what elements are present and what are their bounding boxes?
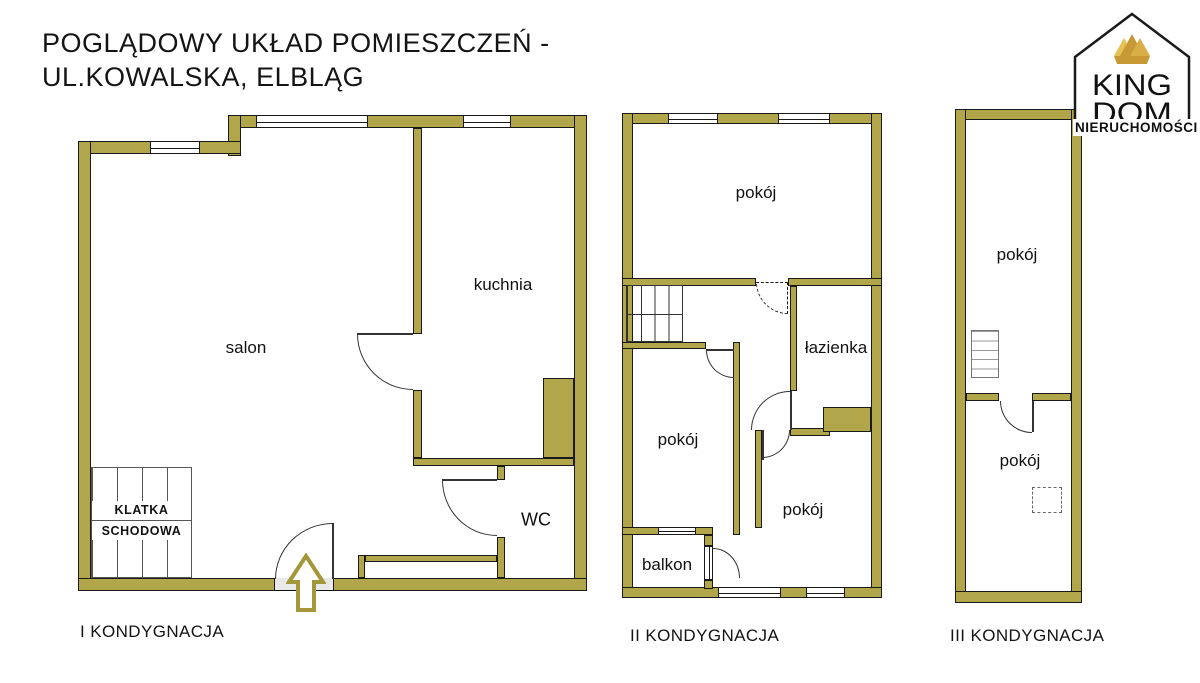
wall-room-left-right: [733, 342, 740, 535]
door-arc: [1000, 401, 1032, 433]
room-label-balcony: balkon: [642, 555, 692, 575]
balcony-door: [704, 546, 713, 580]
door-arc-bathroom: [751, 391, 790, 430]
floor-3-caption: III KONDYGNACJA: [950, 626, 1104, 646]
wall-room-right-left: [755, 430, 762, 528]
door-arc-room-top: [756, 282, 788, 314]
page-title-line1: POGLĄDOWY UKŁAD POMIESZCZEŃ -: [42, 26, 550, 60]
door-arc-wc: [442, 480, 497, 536]
wall-wc: [497, 537, 505, 578]
page-title-line2: UL.KOWALSKA, ELBLĄG: [42, 60, 550, 94]
room-label-room-upper: pokój: [997, 245, 1038, 265]
wall-thick-block: [543, 378, 574, 458]
staircase-label-line2: SCHODOWA: [92, 521, 191, 540]
window: [806, 587, 845, 598]
floor-plan-3: pokój pokój: [955, 107, 1082, 607]
wall-salon-kitchen-divider: [413, 390, 422, 458]
staircase: [626, 285, 683, 342]
floor-plan-1: KLATKA SCHODOWA salon kuchnia WC: [78, 113, 587, 613]
wall: [333, 578, 587, 591]
door-leaf: [1032, 401, 1034, 432]
wall: [574, 115, 587, 591]
entrance-arrow-shape: [289, 556, 323, 610]
wall: [78, 141, 91, 591]
wall: [622, 113, 882, 124]
door-arc-room-left: [706, 350, 734, 378]
wall: [955, 109, 1082, 120]
wall: [871, 113, 882, 598]
room-label-room-left: pokój: [658, 430, 699, 450]
floor-1-caption: I KONDYGNACJA: [80, 622, 224, 642]
room-label-room-right: pokój: [783, 500, 824, 520]
staircase-label-line1: KLATKA: [92, 501, 191, 521]
door-arc-balcony: [713, 548, 740, 578]
floor-2-caption: II KONDYGNACJA: [630, 626, 779, 646]
wall-wc: [497, 466, 505, 480]
room-label-wc: WC: [521, 510, 551, 531]
wall-kitchen-bottom: [413, 458, 574, 466]
wall: [78, 578, 275, 591]
window: [778, 113, 830, 124]
floor-plan-2: pokój łazienka pokój pokój balkon: [622, 108, 882, 608]
door-arc-room-right: [762, 430, 790, 458]
wall: [1071, 109, 1082, 603]
page-title: POGLĄDOWY UKŁAD POMIESZCZEŃ - UL.KOWALSK…: [42, 26, 550, 94]
wall-divider: [1032, 393, 1071, 401]
wall: [955, 591, 1082, 603]
window: [463, 115, 511, 128]
room-label-room-top: pokój: [736, 183, 777, 203]
floor-plan-page: POGLĄDOWY UKŁAD POMIESZCZEŃ - UL.KOWALSK…: [0, 0, 1200, 683]
wall: [622, 113, 633, 598]
wall-hall: [358, 555, 365, 578]
wall-divider: [966, 393, 999, 401]
skylight-marker: [1032, 487, 1062, 513]
window: [150, 141, 200, 154]
room-label-bathroom: łazienka: [805, 338, 867, 358]
window: [668, 113, 718, 124]
entrance-arrow-icon: [286, 553, 326, 613]
window: [718, 587, 781, 598]
logo-subtitle: NIERUCHOMOŚCI: [1073, 119, 1200, 136]
wall-balcony: [704, 535, 713, 546]
room-label-salon: salon: [226, 338, 267, 358]
door-arc-kitchen: [357, 334, 413, 390]
wall-salon-kitchen-divider: [413, 128, 422, 334]
logo-crown-icon: [1114, 56, 1150, 64]
wall-below-room-top: [788, 278, 882, 286]
window-balcony-wall: [658, 527, 696, 535]
staircase: [971, 330, 999, 378]
window: [256, 115, 368, 128]
wall-bathroom-left: [790, 286, 797, 391]
room-label-kitchen: kuchnia: [474, 275, 533, 295]
wall-below-stairs: [622, 342, 706, 349]
room-label-room-lower: pokój: [1000, 451, 1041, 471]
wall-balcony: [704, 580, 713, 589]
staircase-label: KLATKA SCHODOWA: [92, 501, 191, 540]
wall-hall: [365, 555, 497, 562]
wall-thick-block: [823, 407, 871, 432]
door-leaf-bathroom: [790, 391, 792, 430]
wall: [955, 109, 966, 603]
